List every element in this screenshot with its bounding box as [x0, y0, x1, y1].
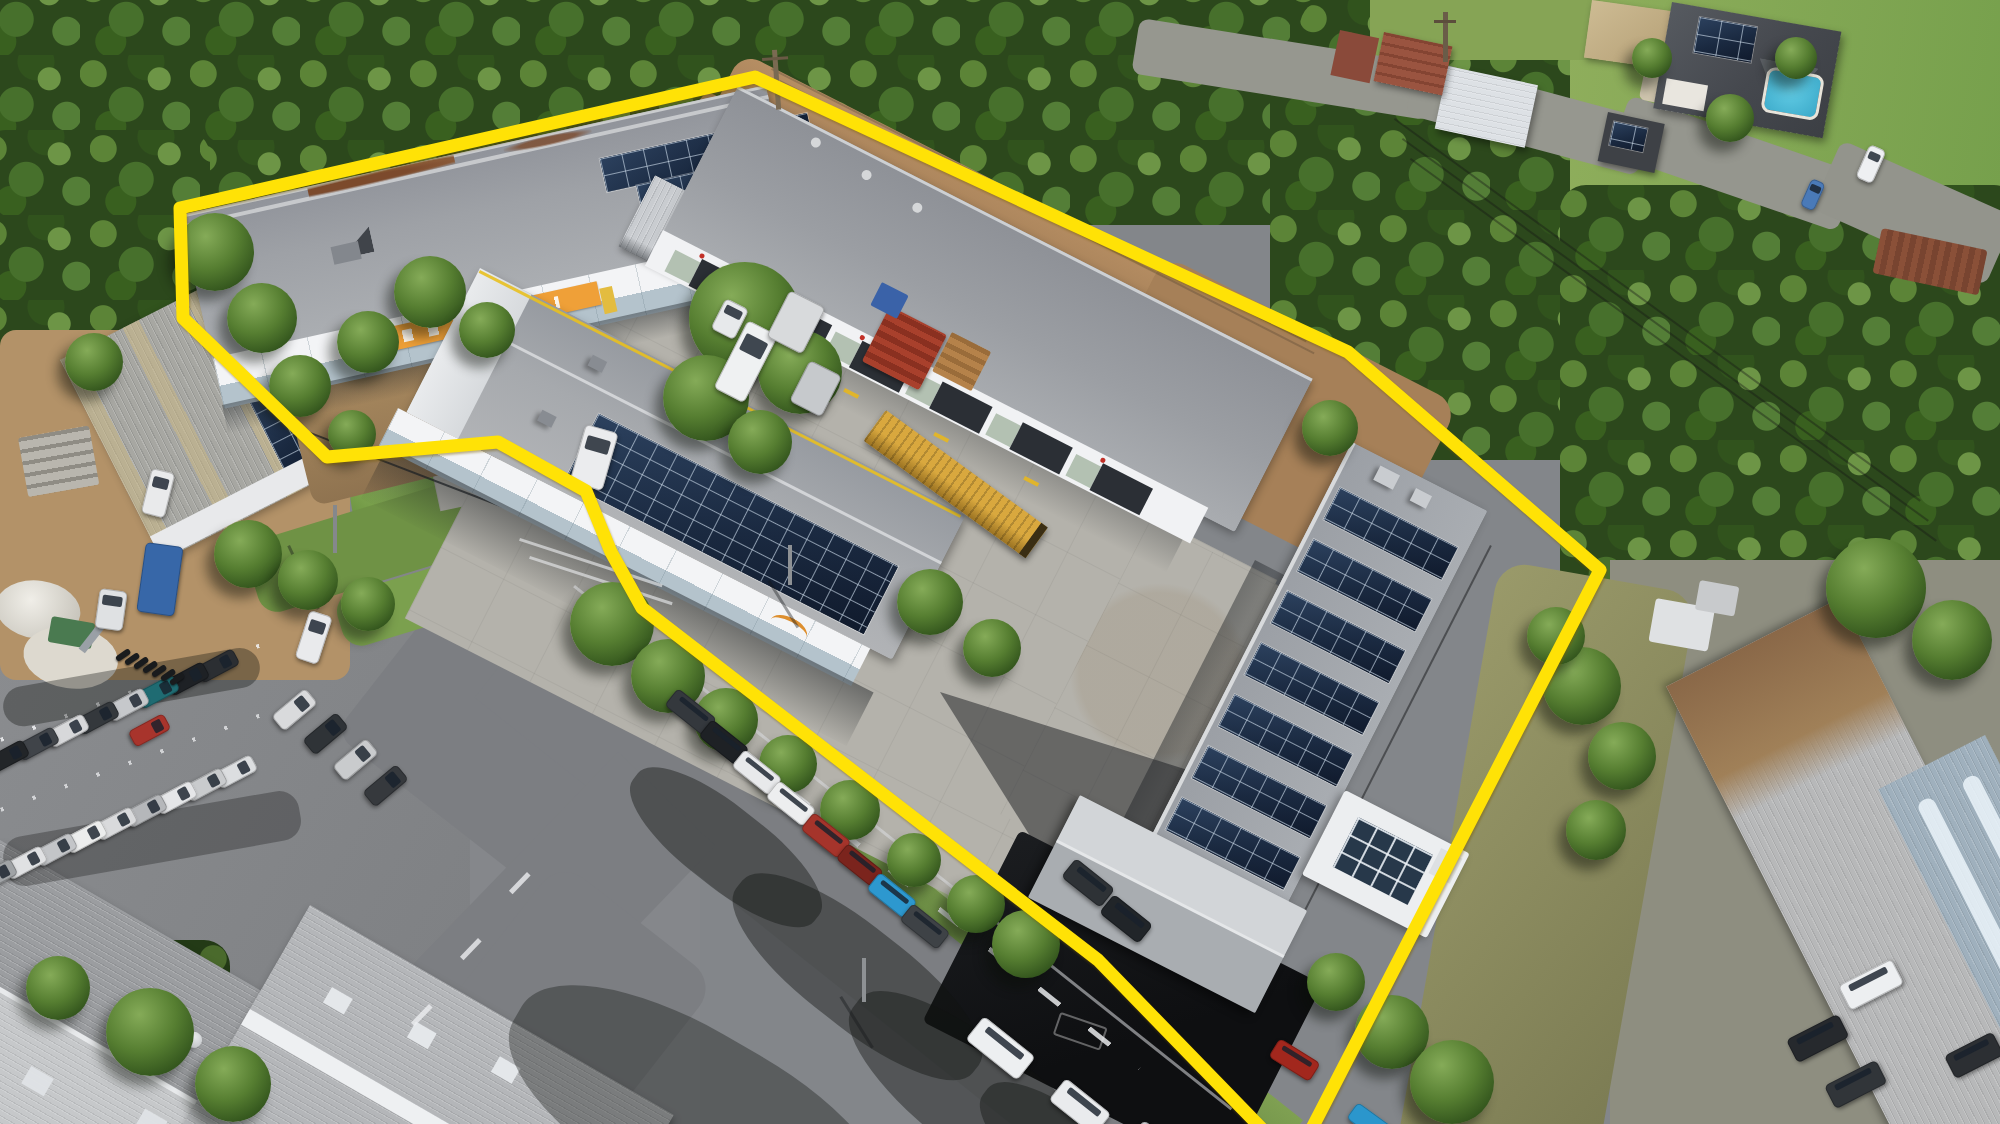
street-van-white [965, 1016, 1035, 1081]
vehicle-windshield [98, 706, 113, 722]
vehicle-windshield [739, 333, 768, 360]
vehicle-windshield [116, 812, 131, 828]
vehicle-windshield [678, 695, 709, 721]
vehicle-windshield [1076, 866, 1107, 892]
east-car-dark [1944, 1031, 2000, 1079]
vehicle-windshield [206, 773, 221, 789]
vehicle-windshield [38, 732, 53, 748]
street-car-silver [1128, 1120, 1185, 1124]
vehicle-windshield [151, 476, 170, 491]
vehicle-windshield [218, 654, 233, 670]
street-car-grey [899, 903, 950, 950]
vehicle-windshield [324, 719, 341, 737]
vehicle-windshield [102, 595, 123, 607]
vehicle-windshield [745, 756, 775, 781]
vehicle-windshield [814, 819, 844, 844]
box-trailer [789, 360, 842, 417]
vehicle-windshield [188, 667, 203, 683]
vehicle-windshield [1953, 1039, 1990, 1062]
box-truck [766, 290, 825, 354]
vehicle-windshield [848, 850, 876, 874]
vehicle-windshield [293, 695, 310, 713]
vehicle-windshield [86, 825, 101, 841]
kerb-car-white [271, 688, 318, 732]
vehicle-windshield [354, 745, 371, 763]
vehicle-windshield [1867, 150, 1882, 163]
kerb-car-silver [332, 738, 379, 782]
vehicle-windshield [1066, 1087, 1102, 1118]
street-suv-white [1049, 1078, 1112, 1124]
vehicle-windshield [1848, 967, 1888, 992]
vehicle-windshield [1809, 183, 1822, 194]
vehicle-windshield [984, 1026, 1025, 1060]
vehicle-windshield [712, 726, 742, 751]
vehicle-windshield [8, 745, 23, 761]
vehicle-windshield [1796, 1021, 1835, 1045]
vehicle-windshield [723, 305, 743, 321]
blue-machinery [136, 542, 183, 617]
kerb-car-dark [362, 764, 409, 808]
vehicle-windshield [26, 851, 41, 867]
street-car-black [1099, 894, 1153, 944]
aerial-photo-scene [0, 0, 2000, 1124]
vehicle-windshield [68, 719, 83, 735]
culdesac-car-white [569, 424, 618, 491]
car-red-shade [1268, 1038, 1320, 1082]
vehicle-windshield [1834, 1067, 1873, 1091]
vehicle-windshield [150, 718, 164, 734]
crane-truck-cab [94, 588, 127, 632]
vehicle-windshield [584, 435, 611, 455]
car-cyan [1346, 1102, 1393, 1124]
east-car-dark [1824, 1060, 1887, 1109]
east-ute-white [1838, 959, 1904, 1011]
vehicle-windshield [56, 838, 71, 854]
east-car-dark [1786, 1014, 1849, 1063]
vehicle-windshield [1281, 1045, 1312, 1067]
kerb-car-dark [302, 712, 349, 756]
vehicle-windshield [1114, 902, 1145, 928]
vehicle-windshield [913, 910, 943, 935]
lot-car-red [128, 713, 172, 748]
vehicle-windshield [384, 771, 401, 789]
vehicle-windshield [307, 619, 327, 636]
vehicle-windshield [128, 693, 143, 709]
residential-suv-white [1855, 144, 1886, 184]
vehicle-windshield [146, 799, 161, 815]
vehicle-windshield [880, 879, 910, 904]
neighbour-ute-white [141, 468, 175, 518]
street-car-dark [1061, 858, 1115, 908]
yard-van-white [295, 610, 333, 665]
vehicle-windshield [236, 760, 251, 776]
vehicle-windshield [779, 787, 809, 812]
vehicle-layer [0, 0, 2000, 1124]
residential-car-blue [1800, 178, 1826, 212]
vehicle-windshield [0, 864, 11, 880]
vehicle-windshield [176, 786, 191, 802]
